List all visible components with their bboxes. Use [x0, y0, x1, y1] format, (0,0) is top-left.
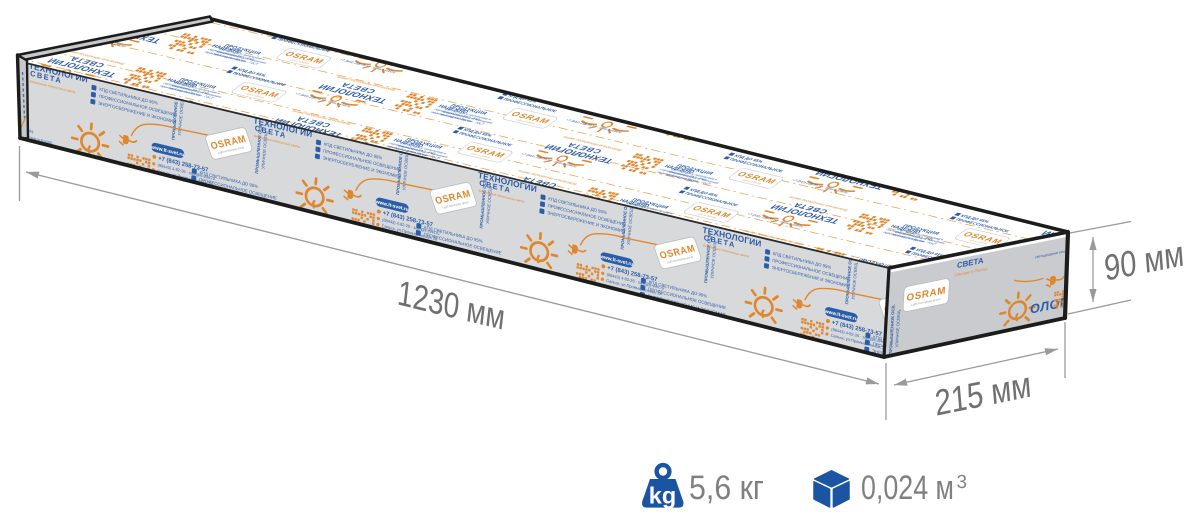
svg-text:КПД ДО 95%: КПД ДО 95% [1185, 274, 1200, 284]
svg-text:НАДЕЖНО: НАДЕЖНО [255, 10, 289, 21]
svg-text:гарантия 5 лет на изделие: гарантия 5 лет на изделие [248, 17, 292, 29]
svg-text:1230 мм: 1230 мм [396, 273, 507, 338]
svg-text:КПД ДО 95%: КПД ДО 95% [1141, 308, 1172, 318]
svg-text:КПД ДО 95%: КПД ДО 95% [1096, 342, 1127, 352]
svg-text:НАДЕЖНО: НАДЕЖНО [1070, 319, 1104, 330]
svg-text:kg: kg [649, 483, 676, 509]
svg-text:НАДЕЖНО: НАДЕЖНО [1115, 285, 1149, 296]
svg-text:3: 3 [957, 472, 968, 493]
svg-text:ПРОФЕССИОНАЛЬНОЕ: ПРОФЕССИОНАЛЬНОЕ [1091, 346, 1147, 361]
svg-text:0,024 м: 0,024 м [861, 469, 954, 507]
svg-text:+7 (843) 258-73-57 · www.lt-sv: +7 (843) 258-73-57 · www.lt-svet.ru [112, 0, 170, 14]
svg-text:НАДЕЖНО: НАДЕЖНО [707, 130, 741, 141]
svg-text:ПРОФЕССИОНАЛЬНОЕ: ПРОФЕССИОНАЛЬНОЕ [1181, 278, 1200, 293]
svg-text:НАДЕЖНО: НАДЕЖНО [481, 70, 515, 81]
svg-text:гарантия 5 лет на изделие: гарантия 5 лет на изделие [1063, 325, 1107, 337]
svg-text:гарантия 5 лет на изделие: гарантия 5 лет на изделие [1108, 291, 1152, 303]
svg-text:сертифицировано ЕАС · IP65: сертифицировано ЕАС · IP65 [1067, 322, 1115, 335]
svg-text:ПРОФЕССИОНАЛЬНОЕ: ПРОФЕССИОНАЛЬНОЕ [1136, 312, 1192, 327]
svg-text:сертифицировано ЕАС · IP65: сертифицировано ЕАС · IP65 [252, 14, 300, 27]
svg-text:сертифицировано ЕАС · IP65: сертифицировано ЕАС · IP65 [1111, 288, 1159, 301]
svg-text:90 мм: 90 мм [1103, 232, 1186, 289]
svg-text:215 мм: 215 мм [933, 363, 1033, 424]
svg-text:сертифицировано ЕАС · IP65: сертифицировано ЕАС · IP65 [478, 74, 526, 87]
svg-text:5,6 кг: 5,6 кг [689, 469, 764, 507]
